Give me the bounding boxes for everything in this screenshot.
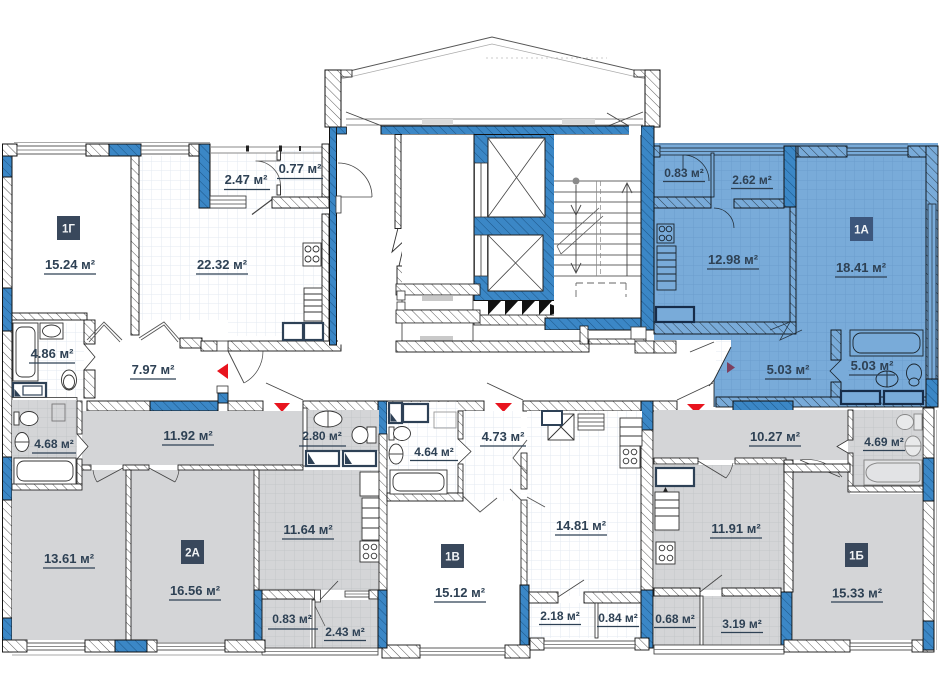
svg-text:10.27 м²: 10.27 м² <box>750 429 801 444</box>
svg-text:4.69 м²: 4.69 м² <box>864 435 904 449</box>
svg-text:3.19 м²: 3.19 м² <box>722 617 762 631</box>
svg-text:11.91 м²: 11.91 м² <box>711 521 761 536</box>
svg-text:11.64 м²: 11.64 м² <box>283 522 333 537</box>
svg-text:11.92 м²: 11.92 м² <box>163 428 213 443</box>
svg-text:15.12 м²: 15.12 м² <box>435 585 486 600</box>
svg-text:1Г: 1Г <box>62 224 75 236</box>
svg-text:15.24 м²: 15.24 м² <box>45 257 96 272</box>
svg-text:0.83 м²: 0.83 м² <box>664 166 704 180</box>
svg-text:2.47 м²: 2.47 м² <box>225 172 269 187</box>
svg-text:1А: 1А <box>854 225 869 237</box>
svg-text:4.64 м²: 4.64 м² <box>414 445 454 459</box>
svg-text:0.83 м²: 0.83 м² <box>272 612 312 626</box>
svg-text:5.03 м²: 5.03 м² <box>767 362 811 377</box>
svg-text:2А: 2А <box>185 548 200 560</box>
svg-text:4.68 м²: 4.68 м² <box>34 437 74 451</box>
svg-text:4.73 м²: 4.73 м² <box>482 429 526 444</box>
svg-text:16.56 м²: 16.56 м² <box>170 583 221 598</box>
svg-text:4.86 м²: 4.86 м² <box>31 346 75 361</box>
svg-text:0.68 м²: 0.68 м² <box>655 612 695 626</box>
svg-text:0.77 м²: 0.77 м² <box>279 161 323 176</box>
svg-text:5.03 м²: 5.03 м² <box>851 358 895 373</box>
svg-text:15.33 м²: 15.33 м² <box>832 586 883 601</box>
svg-text:18.41 м²: 18.41 м² <box>836 260 887 275</box>
svg-text:12.98 м²: 12.98 м² <box>708 252 759 267</box>
svg-text:13.61 м²: 13.61 м² <box>44 551 95 566</box>
svg-text:0.84 м²: 0.84 м² <box>598 611 638 625</box>
svg-text:1Б: 1Б <box>849 551 864 563</box>
svg-text:22.32 м²: 22.32 м² <box>197 257 248 272</box>
svg-text:2.18 м²: 2.18 м² <box>540 609 580 623</box>
svg-text:2.80 м²: 2.80 м² <box>302 429 342 443</box>
svg-text:7.97 м²: 7.97 м² <box>132 362 176 377</box>
svg-text:1В: 1В <box>445 552 460 564</box>
svg-text:2.62 м²: 2.62 м² <box>732 173 772 187</box>
svg-text:14.81 м²: 14.81 м² <box>556 518 607 533</box>
svg-text:2.43 м²: 2.43 м² <box>325 625 365 639</box>
